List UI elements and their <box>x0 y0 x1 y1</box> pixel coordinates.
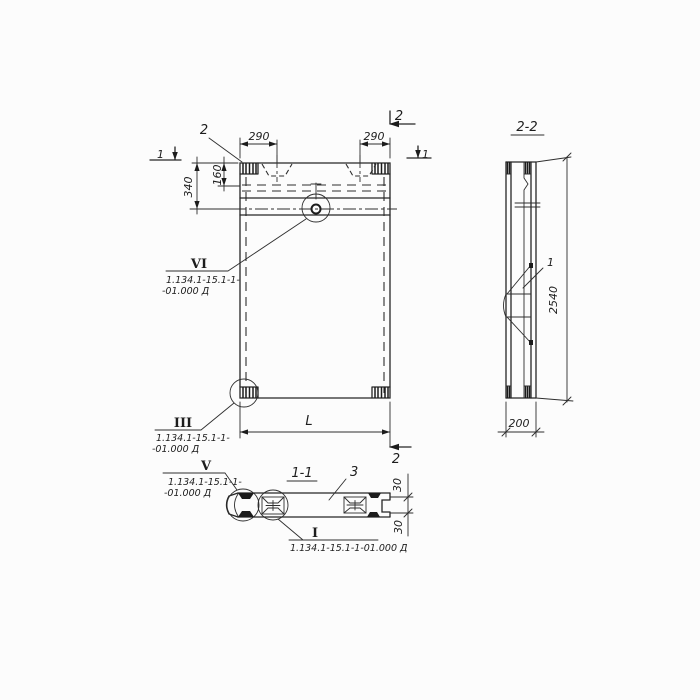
callout-2-label: 2 <box>200 123 208 138</box>
section-1-1-view: 1-1 3 <box>163 459 413 554</box>
section1-cut-marks <box>150 146 431 160</box>
detail-iii-mark: III <box>174 416 192 431</box>
drawing-sheet: 2 1 1 2 2 290 290 160 340 L VI 1.134.1-1… <box>0 0 700 700</box>
side-body <box>506 162 540 398</box>
detail-v-ref2: -01.000 Д <box>164 488 211 499</box>
dim-340: 340 <box>182 177 195 198</box>
section-2-2-view: 2-2 1 2540 <box>498 120 573 437</box>
top-recesses <box>262 155 376 182</box>
keyway-2 <box>344 497 366 513</box>
detail-iii-ref1: 1.134.1-15.1-1- <box>156 433 230 444</box>
dim-length-label: L <box>305 414 312 429</box>
dim-30-top: 30 <box>391 478 404 492</box>
section-2-2-label: 2-2 <box>516 120 537 135</box>
detail-iii-ref2: -01.000 Д <box>152 444 199 455</box>
detail-iii-leader <box>155 403 234 430</box>
dim-290-right: 290 <box>364 130 385 143</box>
detail-vi-ref1: 1.134.1-15.1-1- <box>166 275 240 286</box>
dim-2540: 2540 <box>547 286 560 314</box>
front-view: 2 1 1 2 2 290 290 160 340 L VI 1.134.1-1… <box>150 109 431 467</box>
keyway-1 <box>262 497 284 514</box>
dim-2540-group <box>536 153 573 405</box>
detail-v-ref1: 1.134.1-15.1-1- <box>168 477 242 488</box>
detail-vi-ref2: -01.000 Д <box>162 286 209 297</box>
callout-3-label: 3 <box>350 465 358 480</box>
detail-vi-leader <box>166 219 306 271</box>
dim-200: 200 <box>509 417 530 430</box>
section1-right-label: 1 <box>422 148 429 161</box>
side-joint-key <box>504 263 534 345</box>
dim-length-group <box>240 402 390 447</box>
section1-left-label: 1 <box>157 148 164 161</box>
detail-i-leader <box>278 519 378 540</box>
callout-1-label: 1 <box>547 256 554 269</box>
dim-290-left: 290 <box>249 130 270 143</box>
top-band-lines <box>233 185 397 215</box>
detail-i-mark: I <box>312 526 318 541</box>
section2-top-label: 2 <box>395 109 403 124</box>
detail-i-ref: 1.134.1-15.1-1-01.000 Д <box>290 543 407 554</box>
detail-v-mark: V <box>200 459 212 474</box>
lifting-hole <box>302 183 330 222</box>
detail-vi-mark: VI <box>190 257 207 272</box>
section2-cut-marks <box>389 111 415 450</box>
section2-bottom-label: 2 <box>392 452 400 467</box>
dim-30-bottom: 30 <box>392 520 405 534</box>
callout-3-leader <box>329 479 346 500</box>
section-1-1-label: 1-1 <box>291 466 312 481</box>
panel-drawing: 2 1 1 2 2 290 290 160 340 L VI 1.134.1-1… <box>0 0 700 700</box>
callout-2-leader <box>209 138 242 162</box>
dim-160: 160 <box>211 165 224 186</box>
